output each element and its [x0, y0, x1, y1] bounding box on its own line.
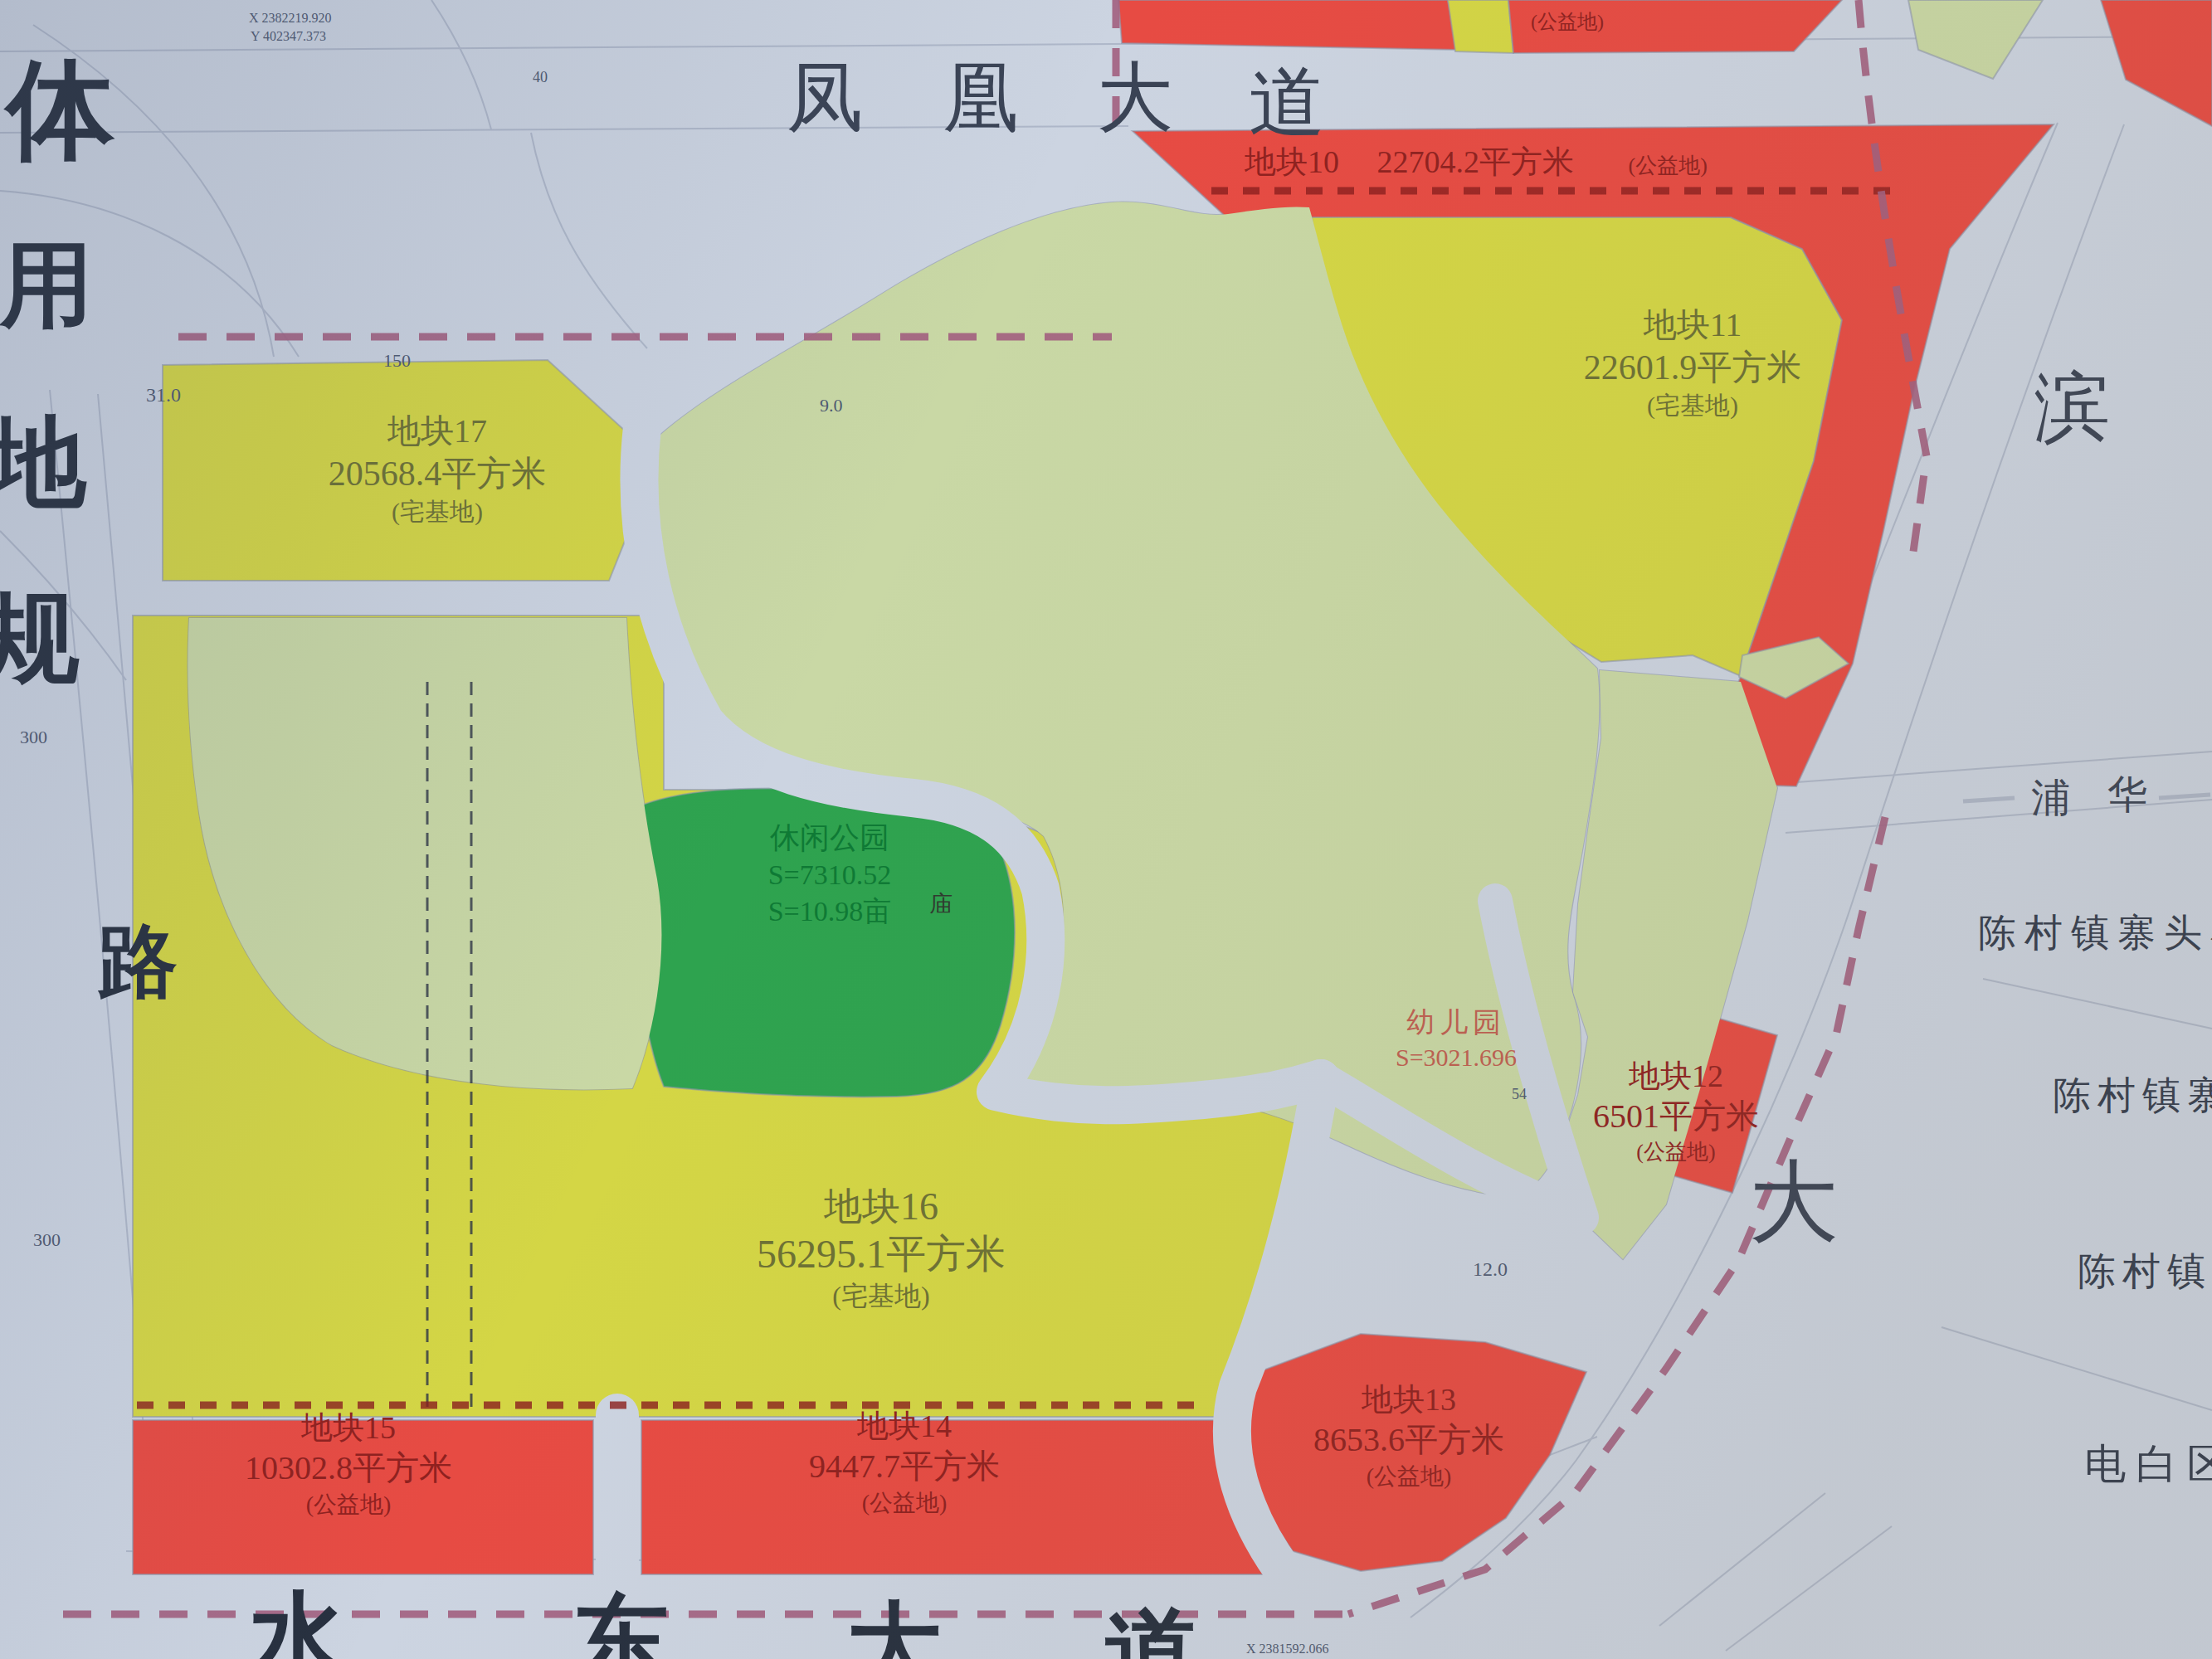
side-title-char-4: 规	[0, 591, 80, 688]
dim-12: 12.0	[1473, 1259, 1508, 1279]
road-binhai-char-1: 滨	[2034, 370, 2111, 446]
parcel-14-label: 地块14 9447.7平方米 (公益地)	[809, 1410, 1000, 1523]
east-label-2: 陈村镇寨	[2053, 1077, 2212, 1115]
temple-label: 庙	[929, 893, 953, 916]
dim-31: 31.0	[146, 385, 181, 405]
top-parcel-red-a	[1118, 0, 1459, 50]
east-label-3: 陈村镇	[2078, 1253, 2212, 1291]
parcel-13-area: 8653.6平方米	[1313, 1423, 1504, 1457]
coordinate-bottom-x: X 2381592.066	[1246, 1642, 1329, 1656]
coordinate-top-x: X 2382219.920	[249, 12, 332, 25]
park-area-2: S=10.98亩	[768, 898, 892, 926]
parcel-10-name: 地块10	[1245, 144, 1339, 179]
parcel-16-area: 56295.1平方米	[757, 1234, 1006, 1274]
parcel-16-tag: (宅基地)	[757, 1282, 1006, 1309]
parcel-14-area: 9447.7平方米	[809, 1450, 1000, 1483]
parcel-12-tag: (公益地)	[1593, 1141, 1759, 1163]
east-label-1: 陈村镇寨头小	[1978, 914, 2212, 952]
road-puhua-char-2: 华	[2107, 775, 2147, 815]
parcel-12-name: 地块12	[1593, 1060, 1759, 1092]
road-binhai-char-2: 大	[1749, 1158, 1839, 1248]
parcel-15-label: 地块15 10302.8平方米 (公益地)	[245, 1412, 452, 1525]
kindergarten-name: 幼儿园	[1396, 1009, 1517, 1037]
planning-map-photo: 体 用 地 规 路 凤 凰 大 道 水 东 大 道 滨 大 浦 华 陈村镇寨头小…	[0, 0, 2212, 1659]
road-phoenix-char-2: 凰	[943, 60, 1019, 136]
parcel-14-tag: (公益地)	[809, 1491, 1000, 1515]
parcel-15-tag: (公益地)	[245, 1493, 452, 1516]
top-right-tag: (公益地)	[1531, 12, 1604, 32]
dim-150: 150	[383, 352, 411, 370]
parcel-16-name: 地块16	[757, 1188, 1006, 1226]
road-shuidong-char-1: 水	[249, 1589, 345, 1659]
dim-300-b: 300	[33, 1231, 61, 1249]
park-name: 休闲公园	[768, 823, 892, 853]
kindergarten-area: S=3021.696	[1396, 1045, 1517, 1070]
parcel-10-label: 地块10 22704.2平方米 (公益地)	[1245, 146, 1708, 178]
dim-40: 40	[533, 70, 548, 85]
side-road-label: 路	[98, 922, 178, 1002]
road-shuidong-char-3: 大	[846, 1599, 943, 1659]
parcel-13-label: 地块13 8653.6平方米 (公益地)	[1313, 1384, 1504, 1496]
parcel-14-name: 地块14	[809, 1410, 1000, 1442]
park-area-1: S=7310.52	[768, 861, 892, 889]
parcel-16-label: 地块16 56295.1平方米 (宅基地)	[757, 1188, 1006, 1317]
parcel-11-tag: (宅基地)	[1584, 393, 1802, 418]
parcel-17-name: 地块17	[329, 415, 547, 448]
parcel-13-name: 地块13	[1313, 1384, 1504, 1415]
leisure-park-label: 休闲公园 S=7310.52 S=10.98亩	[768, 823, 892, 934]
top-parcel-yellow	[1448, 0, 1513, 53]
dim-300-a: 300	[20, 728, 47, 747]
parcel-11-label: 地块11 22601.9平方米 (宅基地)	[1584, 309, 1802, 426]
dim-54: 54	[1512, 1087, 1527, 1102]
parcel-17-area: 20568.4平方米	[329, 456, 547, 491]
parcel-11-area: 22601.9平方米	[1584, 350, 1802, 385]
parcel-13-tag: (公益地)	[1313, 1465, 1504, 1488]
road-phoenix-char-3: 大	[1097, 60, 1173, 136]
parcel-11-name: 地块11	[1584, 309, 1802, 342]
parcel-12-label: 地块12 6501平方米 (公益地)	[1593, 1060, 1759, 1171]
parcel-15-area: 10302.8平方米	[245, 1452, 452, 1485]
east-label-4: 电白区	[2084, 1443, 2212, 1485]
parcel-17-tag: (宅基地)	[329, 499, 547, 524]
road-shuidong-char-2: 东	[572, 1593, 669, 1659]
top-parcel-red-c	[2101, 0, 2212, 126]
kindergarten-label: 幼儿园 S=3021.696	[1396, 1009, 1517, 1078]
road-phoenix-char-1: 凤	[787, 60, 863, 136]
side-title-char-1: 体	[7, 56, 114, 164]
road-phoenix-char-4: 道	[1249, 65, 1325, 141]
top-parcel-green	[1908, 0, 2043, 79]
parcel-12-area: 6501平方米	[1593, 1100, 1759, 1133]
parcel-10-area: 22704.2平方米	[1377, 144, 1575, 179]
parcel-10-tag: (公益地)	[1629, 153, 1708, 178]
parcel-15-name: 地块15	[245, 1412, 452, 1443]
dim-9: 9.0	[820, 397, 843, 415]
road-shuidong-char-4: 道	[1104, 1606, 1200, 1659]
road-puhua-char-1: 浦	[2031, 778, 2071, 818]
side-title-char-2: 用	[0, 239, 93, 332]
parcel-17-label: 地块17 20568.4平方米 (宅基地)	[329, 415, 547, 533]
side-title-char-3: 地	[0, 415, 86, 513]
coordinate-top-y: Y 402347.373	[251, 30, 326, 43]
